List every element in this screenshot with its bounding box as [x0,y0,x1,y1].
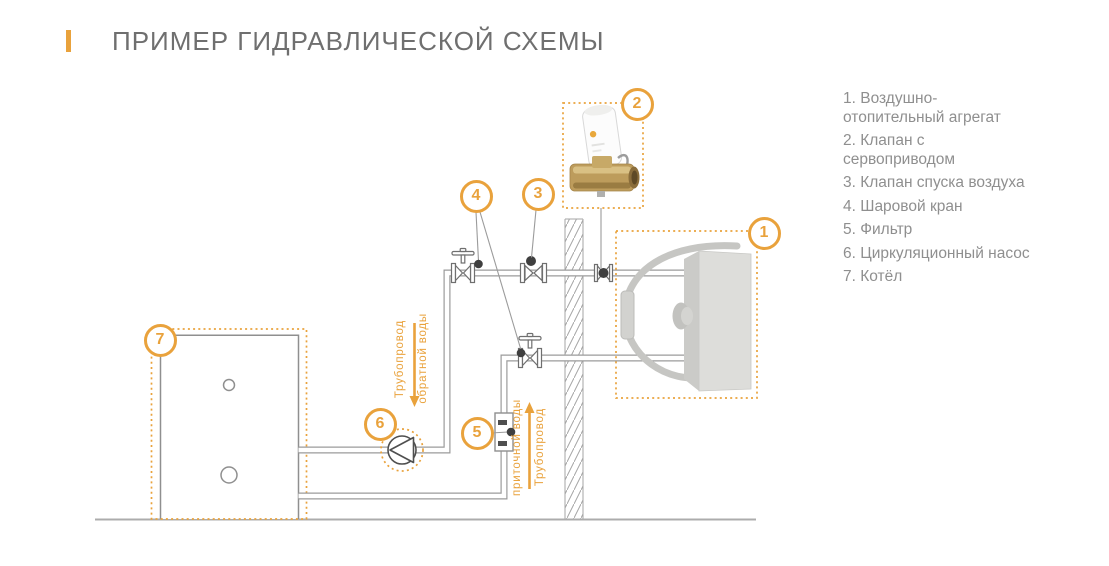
up-arrow-icon [525,402,535,489]
badge-4: 4 [460,180,493,213]
boiler [161,335,299,519]
air-release-valve [521,256,547,283]
badge-6: 6 [364,408,397,441]
supply-pipe-label-word-2: приточной воды [511,399,523,496]
wall [565,219,583,519]
slide: ПРИМЕР ГИДРАВЛИЧЕСКОЙ СХЕМЫ 1. Воздушно-… [0,0,1109,566]
badge-7: 7 [144,324,177,357]
air-heater-unit [621,246,751,391]
supply-pipe-label-word-1: Трубопровод [534,408,546,486]
return-pipe-label-word-1: Трубопровод [394,320,406,398]
ball-valve-top [452,249,475,283]
diagram-canvas [0,0,1109,566]
badge-1: 1 [748,217,781,250]
servo-valve-symbol [595,265,613,282]
badge-2: 2 [621,88,654,121]
badge-5: 5 [461,417,494,450]
badge-3: 3 [522,178,555,211]
return-pipe-label-word-2: обратной воды [417,313,429,404]
